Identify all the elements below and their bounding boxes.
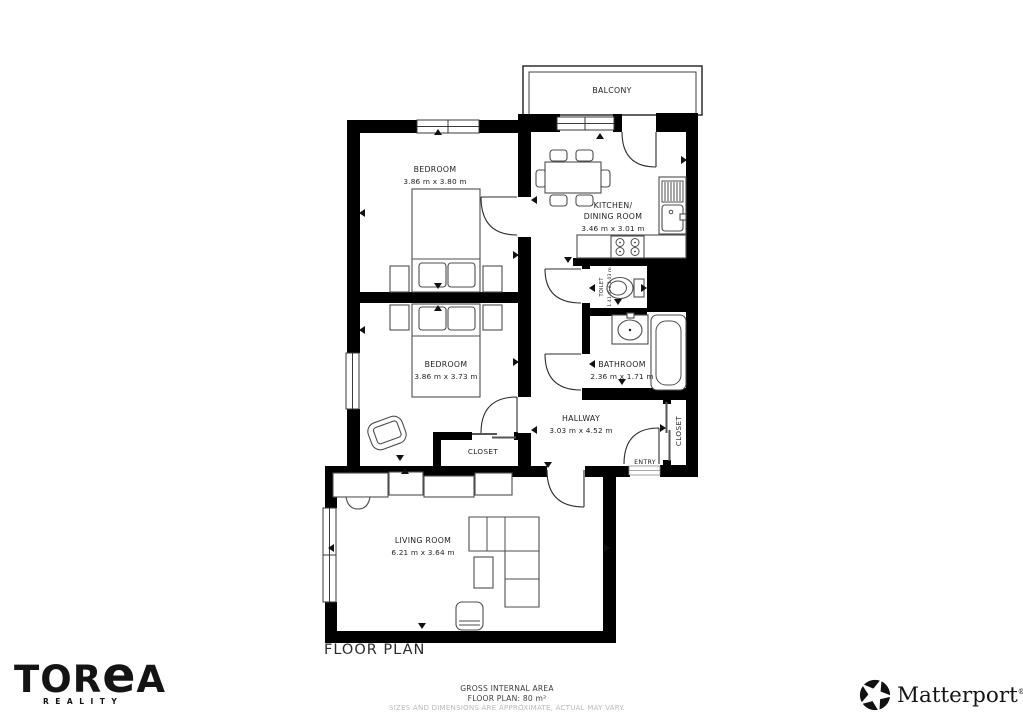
door-bathroom [545, 354, 581, 390]
door-living-room [547, 470, 584, 507]
floor-plan-page: BALCONY BEDROOM 3.86 m x 3.80 m KITCHEN/… [0, 0, 1023, 724]
agency-logo-wordmark: TOReA [14, 662, 166, 698]
agency-name-suffix: A [136, 658, 166, 701]
kitchen-label-line2: DINING ROOM [584, 212, 643, 221]
bathtub [651, 315, 686, 390]
agency-name-prefix: TOR [14, 658, 102, 701]
door-bedroom-middle [481, 397, 517, 433]
agency-logo: TOReA REALITY [14, 662, 166, 706]
living-room-dims: 6.21 m x 3.64 m [391, 548, 454, 557]
kitchen-dims: 3.46 m x 3.01 m [581, 224, 644, 233]
bathroom-label: BATHROOM [598, 360, 646, 369]
living-desk-chair [333, 473, 388, 509]
door-toilet [545, 269, 581, 303]
bedroom-top-dims: 3.86 m x 3.80 m [403, 177, 466, 186]
bathroom-dims: 2.36 m x 1.71 m [590, 372, 653, 381]
matterport-name: Matterport [897, 683, 1018, 708]
balcony-label: BALCONY [592, 86, 631, 95]
matterport-wordmark: Matterport® [897, 683, 1023, 708]
floor-plan-drawing: BALCONY BEDROOM 3.86 m x 3.80 m KITCHEN/… [0, 0, 1023, 724]
agency-name-stylized-e: e [102, 647, 136, 704]
armchair [365, 414, 408, 453]
matterport-pinwheel-icon [858, 678, 892, 712]
window-bedroom-middle [346, 353, 359, 409]
door-balcony [622, 132, 656, 167]
hallway-dims: 3.03 m x 4.52 m [549, 426, 612, 435]
bedroom-top-label: BEDROOM [414, 165, 457, 174]
door-bedroom-top [481, 197, 517, 235]
floor-plan-title: FLOOR PLAN [324, 642, 425, 658]
kitchen-label-line1: KITCHEN/ [594, 201, 633, 210]
entry-label: ENTRY [634, 459, 656, 466]
kitchen-counter-stove [577, 235, 686, 258]
closet-hallway-label: CLOSET [674, 416, 683, 447]
sliding-door-closet-bedroom [472, 434, 516, 438]
bedroom-middle-label: BEDROOM [425, 360, 468, 369]
gross-internal-area-label: GROSS INTERNAL AREA [307, 684, 707, 694]
footer-notes: GROSS INTERNAL AREA FLOOR PLAN: 80 m² SI… [307, 684, 707, 713]
dining-table-and-chairs [536, 150, 610, 206]
toilet-dims: 1.41 m x 1.03 m [607, 267, 613, 307]
window-living-room [323, 508, 336, 602]
closet-bedroom-label: CLOSET [468, 447, 499, 456]
registered-trademark-mark: ® [1018, 687, 1023, 695]
partner-logo: Matterport® [858, 678, 1023, 712]
door-entry [624, 428, 660, 475]
living-room-label: LIVING ROOM [395, 536, 451, 545]
window-balcony-slider [557, 117, 614, 130]
living-sideboards [389, 472, 512, 497]
bedroom-middle-dims: 3.86 m x 3.73 m [414, 372, 477, 381]
bathroom-sink [612, 313, 648, 344]
toilet-label: TOILET [599, 277, 605, 298]
sliding-door-closet-hallway [667, 402, 670, 461]
bed-bedroom-top [390, 189, 502, 292]
floor-plan-area-value: FLOOR PLAN: 80 m² [307, 694, 707, 704]
living-coffee-table [474, 557, 493, 588]
window-bedroom-top [417, 120, 479, 133]
living-stool [456, 602, 483, 630]
bed-bedroom-middle [390, 304, 502, 397]
disclaimer-text: SIZES AND DIMENSIONS ARE APPROXIMATE, AC… [307, 703, 707, 712]
hallway-label: HALLWAY [562, 414, 600, 423]
kitchen-counter-sink [659, 177, 686, 234]
